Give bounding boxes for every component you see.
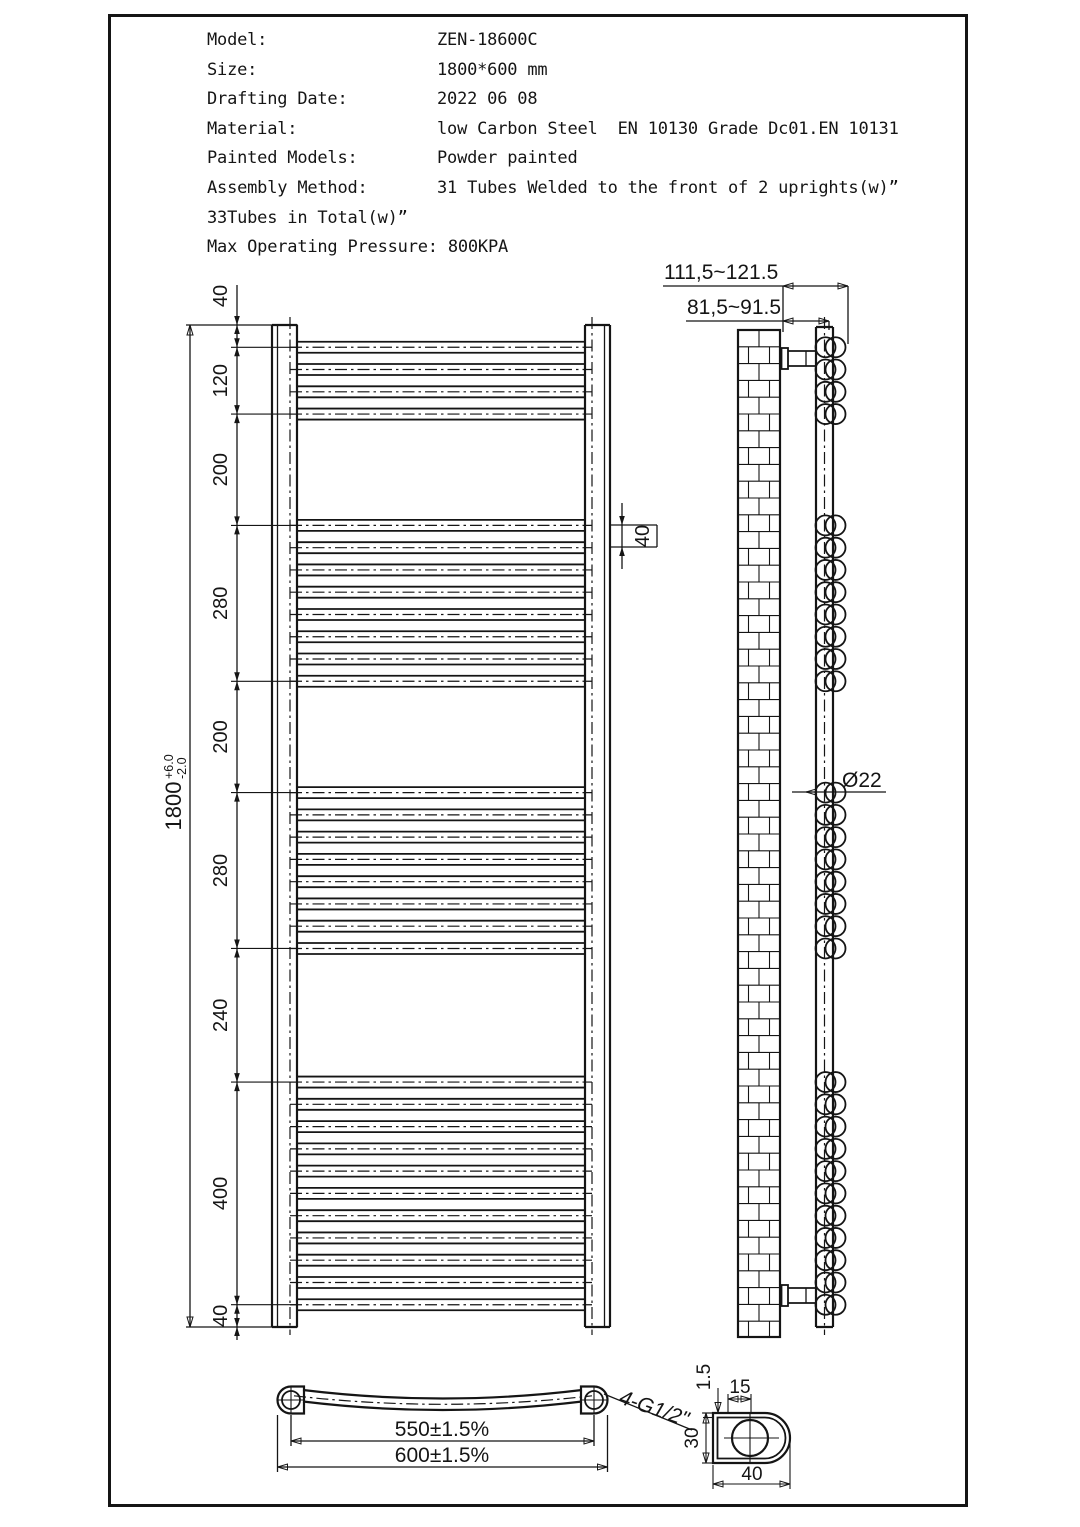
arrowhead [234, 1073, 240, 1082]
arrowhead [234, 414, 240, 423]
arrowhead [234, 525, 240, 534]
plan-view: 4-G1/2" 550±1.5% 600±1.5% [278, 1386, 694, 1472]
tube-diameter-label: Ø22 [842, 769, 882, 792]
overall-width-label: 600±1.5% [395, 1444, 489, 1467]
technical-drawing: 1800 +6.0 -2.0 4012020028020028024040040… [0, 0, 1080, 1527]
chain-dim-label: 400 [210, 1177, 232, 1210]
chain-dimension: 4012020028020028024040040 [210, 285, 298, 1340]
chain-dim-label: 40 [210, 1305, 232, 1327]
curved-tube-centerline [294, 1396, 592, 1405]
tube-diameter-dimension: Ø22 [792, 769, 886, 792]
chain-dim-label-group: 240 [210, 999, 232, 1032]
arrowhead [234, 325, 240, 334]
chain-dim-label: 280 [210, 854, 232, 887]
bottom-bracket [782, 1285, 817, 1306]
detail-dim-40: 40 [713, 1440, 790, 1489]
arrowhead [234, 784, 240, 793]
chain-dim-label-group: 280 [210, 854, 232, 887]
tolerance-plus: +6.0 [162, 754, 176, 779]
front-right-upright [585, 317, 610, 1335]
arrowhead [234, 516, 240, 525]
chain-dimension-marks: 4012020028020028024040040 [210, 285, 298, 1336]
chain-dim-label: 200 [210, 720, 232, 753]
side-tube-circles [816, 337, 846, 1314]
wall-offset-inner-dimension: 81,5~91.5 [686, 296, 829, 330]
detail-dim-15: 15 [728, 1377, 751, 1413]
detail-wall-label: 1.5 [694, 1364, 715, 1390]
offset-outer-label: 111,5~121.5 [664, 261, 778, 284]
side-view: 111,5~121.5 81,5~91.5 Ø22 [663, 261, 886, 1337]
chain-dim-label-group: 120 [210, 364, 232, 397]
plan-right-upright [581, 1387, 608, 1414]
detail-15-label: 15 [729, 1377, 750, 1398]
arrowhead [234, 681, 240, 690]
arrowhead [234, 405, 240, 414]
curved-tube-bottom-edge [303, 1402, 582, 1411]
pitch-label: 40 [632, 525, 654, 547]
arrowhead [234, 939, 240, 948]
arrowhead [234, 1318, 240, 1327]
chain-dim-label-group: 200 [210, 720, 232, 753]
profile-detail-view: 15 1.5 30 40 [682, 1364, 790, 1489]
arrowhead [234, 1082, 240, 1091]
tolerance-minus: -2.0 [175, 757, 189, 779]
arrowhead [234, 316, 240, 325]
arrowhead [234, 347, 240, 356]
arrowhead [234, 338, 240, 347]
chain-dim-label: 280 [210, 587, 232, 620]
arrowhead [234, 793, 240, 802]
chain-dim-label: 200 [210, 453, 232, 486]
arrowhead [234, 1305, 240, 1314]
chain-dim-label-group: 400 [210, 1177, 232, 1210]
curved-tube-top-edge [303, 1390, 582, 1399]
thread-callout: 4-G1/2" [604, 1386, 693, 1432]
detail-dim-wall-1_5: 1.5 [694, 1364, 718, 1418]
dim-1800: 1800 [161, 782, 186, 831]
detail-30-label: 30 [682, 1427, 703, 1448]
arrowhead [234, 672, 240, 681]
thread-label: 4-G1/2" [616, 1386, 693, 1432]
chain-dim-label-group: 200 [210, 453, 232, 486]
chain-dim-label-group: 40 [210, 285, 232, 307]
arrowhead [234, 1296, 240, 1305]
offset-inner-label: 81,5~91.5 [687, 296, 781, 319]
chain-dim-label-group: 280 [210, 587, 232, 620]
arrowhead [234, 948, 240, 957]
front-left-upright [272, 317, 297, 1335]
plan-left-upright [278, 1387, 305, 1414]
top-bracket [782, 348, 817, 369]
centers-dimension: 550±1.5% [291, 1415, 594, 1446]
chain-dim-label: 240 [210, 999, 232, 1032]
chain-dim-label: 120 [210, 364, 232, 397]
front-view: 1800 +6.0 -2.0 4012020028020028024040040… [161, 285, 657, 1340]
chain-dim-label: 40 [210, 285, 232, 307]
arrowhead [234, 1327, 240, 1336]
overall-height-label: 1800 +6.0 -2.0 [161, 754, 189, 830]
front-tubes [290, 342, 592, 1310]
detail-40-label: 40 [741, 1464, 762, 1485]
brick-wall-hatch [738, 330, 780, 1337]
centers-dim-label: 550±1.5% [395, 1418, 489, 1441]
tube-pitch-dimension: 40 [610, 503, 657, 569]
chain-dim-label-group: 40 [210, 1305, 232, 1327]
side-upright [816, 317, 833, 1335]
